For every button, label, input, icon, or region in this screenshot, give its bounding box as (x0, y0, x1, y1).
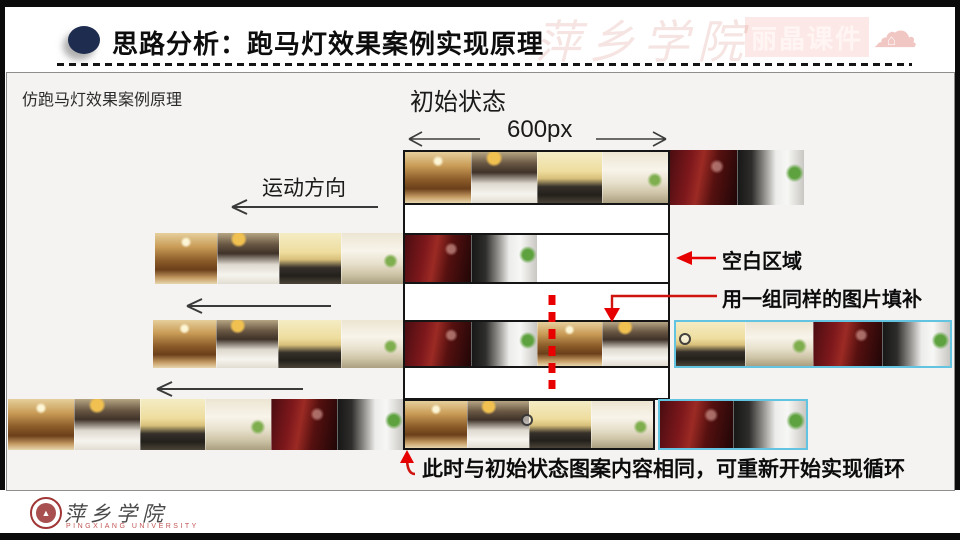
cloud-icon: ☁ (872, 4, 918, 58)
direction-label: 运动方向 (262, 172, 346, 202)
frame-bar-top (0, 0, 960, 7)
initial-state-label: 初始状态 (410, 82, 506, 117)
cloud-home-icon: ☁ ⌂ (872, 10, 916, 60)
fill-annotation-label: 用一组同样的图片填补 (722, 283, 922, 312)
page-title: 思路分析：跑马灯效果案例实现原理 (112, 24, 544, 61)
frame-bar-right (955, 0, 960, 490)
watermark-brand-badge: 丽晶课件 (745, 17, 869, 57)
university-logo: ▲ (30, 497, 62, 529)
university-emblem-icon: ▲ (36, 503, 56, 523)
frame-bar-left (0, 0, 5, 490)
header-divider (57, 63, 912, 66)
house-icon: ⌂ (887, 32, 896, 49)
university-name-en: PINGXIANG UNIVERSITY (66, 523, 199, 530)
viewport-outline-box (403, 150, 670, 400)
frame-bar-bottom (0, 533, 960, 540)
viewport-width-label: 600px (507, 116, 572, 144)
loop-annotation-label: 此时与初始状态图案内容相同，可重新开始实现循环 (422, 453, 905, 483)
title-bullet-icon (68, 26, 100, 54)
slide: 萍乡学院 丽晶课件 ☁ ⌂ 思路分析：跑马灯效果案例实现原理 仿跑马灯效果案例原… (0, 0, 960, 540)
principle-label: 仿跑马灯效果案例原理 (22, 86, 182, 110)
blank-area-label: 空白区域 (722, 245, 802, 274)
